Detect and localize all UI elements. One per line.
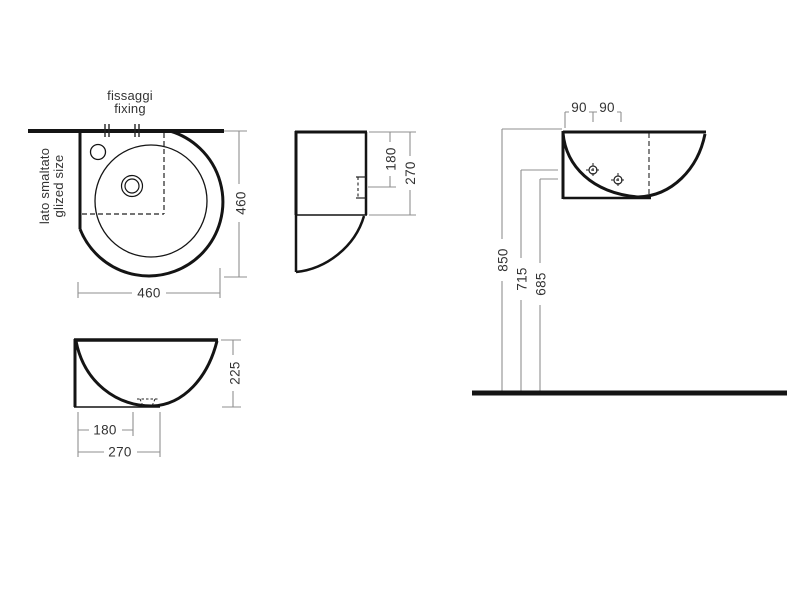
side-depth-dim-label: 270 (403, 161, 418, 184)
wall-spacing-right-label: 90 (599, 100, 615, 115)
plan-glazed-label: lato smaltato glized size (37, 148, 66, 224)
side-drain-dim-label: 180 (384, 147, 399, 170)
side-drain-dim-label-group: 180 (380, 142, 399, 176)
wall-fixing-height-2-label-group: 685 (530, 263, 549, 305)
plan-width-dim-label: 460 (137, 286, 160, 301)
fixing-hole-crosshair-1 (586, 163, 600, 177)
side-view: 180 270 (295, 131, 418, 272)
front-view: 180 270 225 (74, 339, 243, 460)
side-depth-dim-label-group: 270 (400, 156, 419, 190)
wall-spacing-left-label: 90 (571, 100, 587, 115)
plan-depth-dim-label: 460 (234, 191, 249, 214)
front-drain-dim-label: 180 (93, 423, 116, 438)
plan-depth-dim-label-group: 460 (230, 184, 249, 222)
front-height-dim-label-group: 225 (224, 355, 243, 391)
wall-rim-height-label-group: 850 (492, 239, 511, 281)
plan-outer-arc (80, 131, 223, 276)
front-base-dim-label: 270 (108, 445, 131, 460)
washbasin-technical-drawing: fissaggi fixing lato smaltato glized siz… (0, 0, 800, 600)
wall-elevation-view: 90 90 850 715 685 (472, 100, 787, 393)
side-drain-detail (356, 177, 366, 198)
wall-fixing-height-1-label-group: 715 (511, 258, 530, 300)
wall-fixing-height-1-label: 715 (515, 267, 530, 290)
wall-rim-height-label: 850 (496, 248, 511, 271)
front-height-dim-label: 225 (228, 361, 243, 384)
plan-glazed-label-line2: glized size (51, 155, 66, 218)
wall-bowl-curve (563, 133, 705, 197)
plan-fixing-label-line2: fixing (114, 101, 146, 116)
front-bowl-curve (76, 341, 217, 406)
plan-inner-rim (95, 145, 207, 257)
plan-drain-inner (125, 179, 139, 193)
plan-glazed-label-line1: lato smaltato (37, 148, 52, 224)
side-bowl-curve (296, 216, 364, 272)
plan-view: fissaggi fixing lato smaltato glized siz… (28, 88, 249, 301)
fixing-hole-crosshair-2 (611, 173, 625, 187)
wall-fixing-height-2-label: 685 (534, 272, 549, 295)
plan-faucet-hole (91, 145, 106, 160)
